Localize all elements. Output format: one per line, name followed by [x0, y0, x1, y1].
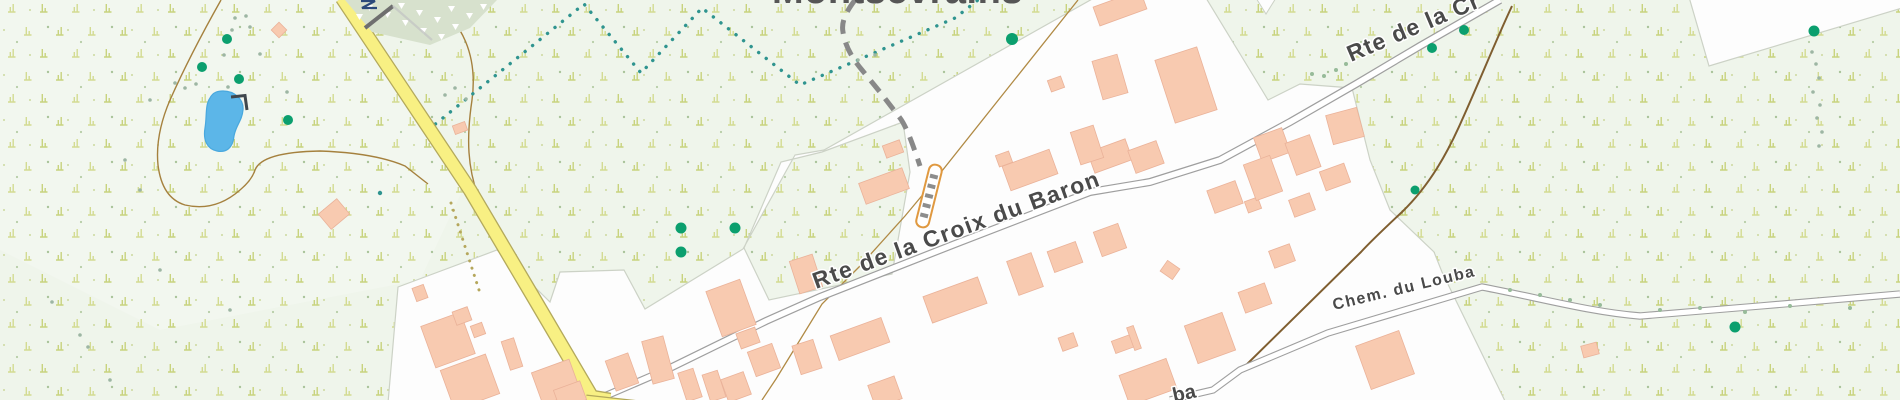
svg-text:Montsevrains: Montsevrains: [772, 0, 1023, 12]
